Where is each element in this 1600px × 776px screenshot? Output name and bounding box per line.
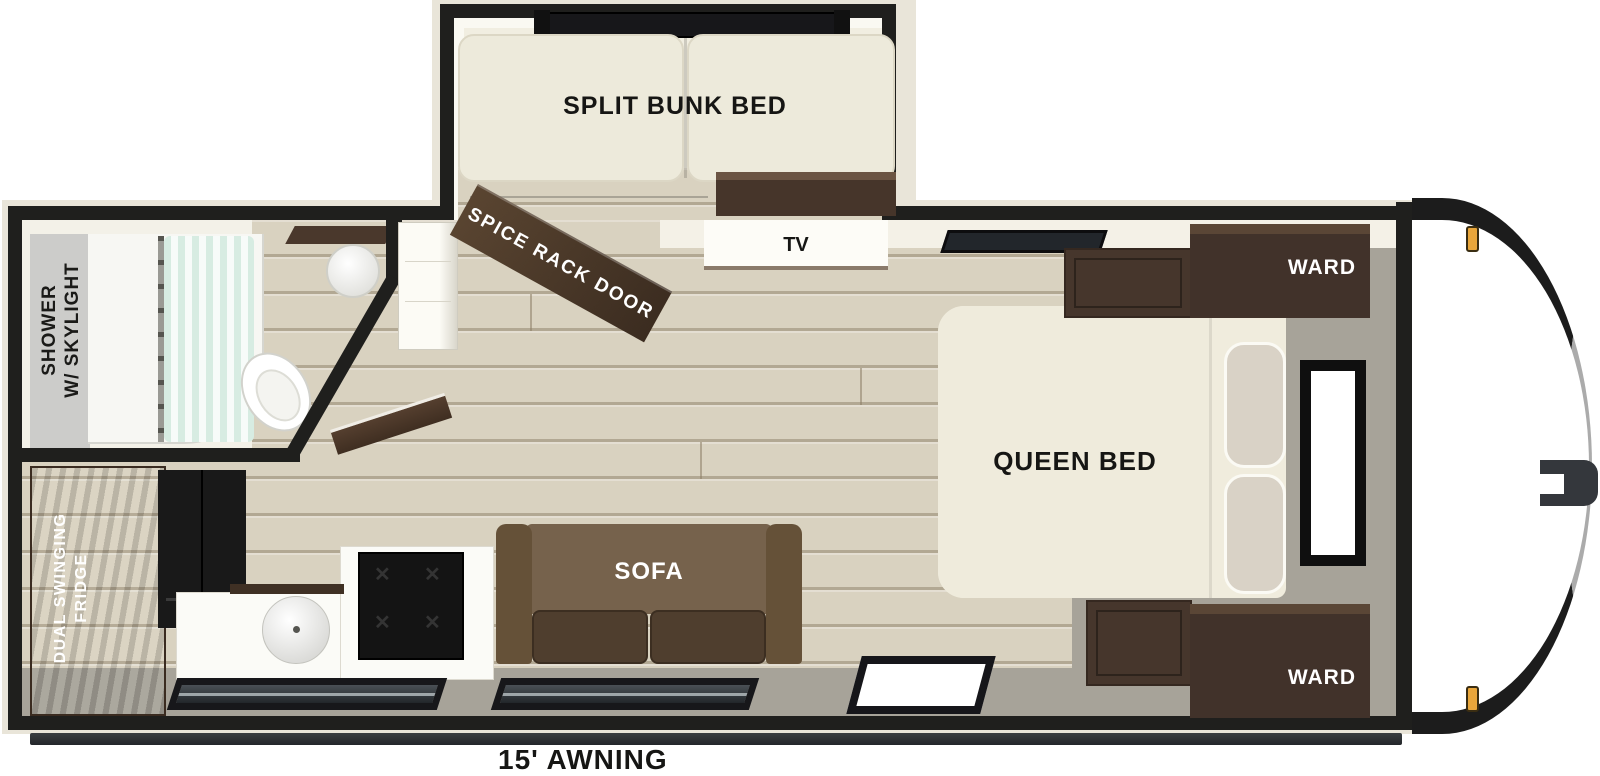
wardrobe-bottom: WARD xyxy=(1190,604,1370,718)
linen-cabinet xyxy=(398,222,458,350)
wall-front xyxy=(1396,202,1412,730)
kitchen-window xyxy=(167,678,447,710)
shower-curtain-rod xyxy=(158,236,164,442)
sofa-cushion xyxy=(532,610,648,664)
wardrobe-label: WARD xyxy=(1288,256,1356,280)
sofa-cushion xyxy=(650,610,766,664)
bathroom-wall xyxy=(8,448,300,462)
sofa-window xyxy=(491,678,759,710)
awning xyxy=(30,733,1402,745)
stove-burner-icon: ✕ xyxy=(374,562,391,587)
sink-drain xyxy=(293,626,300,633)
sofa-armrest xyxy=(766,524,802,664)
shower-curtain xyxy=(164,236,254,442)
overhead-cabinet xyxy=(1064,248,1192,318)
split-bunk-bed-label: SPLIT BUNK BED xyxy=(454,92,896,121)
entry-door xyxy=(846,656,996,714)
marker-light xyxy=(1466,686,1479,712)
stove-burner-icon: ✕ xyxy=(424,610,441,635)
overhead-cabinet xyxy=(1086,600,1192,686)
rv-floorplan: SPLIT BUNK BED TV SHOWER W/ SKYLIGHT SPI… xyxy=(0,0,1600,776)
awning-label: 15' AWNING xyxy=(498,744,668,776)
wall-rear xyxy=(8,206,22,730)
wardrobe-top: WARD xyxy=(1190,224,1370,318)
bedroom-window xyxy=(1300,360,1366,566)
stove-burner-icon: ✕ xyxy=(374,610,391,635)
sofa-label: SOFA xyxy=(526,558,772,586)
pillow xyxy=(1224,342,1286,468)
bunk-drawer-line xyxy=(470,196,708,198)
plank-seam xyxy=(530,294,532,331)
plank-seam xyxy=(700,442,702,479)
wall-bottom xyxy=(8,716,1412,730)
queen-bed-label: QUEEN BED xyxy=(938,446,1212,477)
bathroom-counter xyxy=(285,226,395,244)
tv-label: TV xyxy=(704,234,888,257)
queen-bed: QUEEN BED xyxy=(938,306,1286,598)
hitch-notch xyxy=(1540,474,1564,494)
stove: ✕ ✕ ✕ ✕ xyxy=(358,552,464,660)
plank-seam xyxy=(860,368,862,405)
marker-light xyxy=(1466,226,1479,252)
bunk-dresser xyxy=(716,172,896,216)
shower-skylight-label: SHOWER W/ SKYLIGHT xyxy=(39,262,85,398)
wall-top-right xyxy=(896,206,1398,220)
sofa-armrest xyxy=(496,524,532,664)
pillow xyxy=(1224,474,1286,594)
sofa: SOFA xyxy=(496,524,802,668)
bathroom-sink xyxy=(326,244,380,298)
wardrobe-label: WARD xyxy=(1288,666,1356,690)
stove-burner-icon: ✕ xyxy=(424,562,441,587)
backsplash xyxy=(230,584,344,594)
fridge-label: DUAL SWINGING FRIDGE xyxy=(51,513,93,664)
